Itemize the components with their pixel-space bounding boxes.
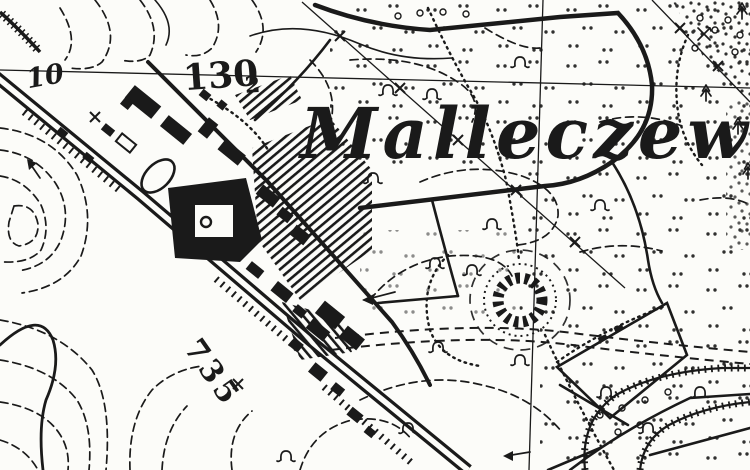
historical-topographic-map[interactable]: Malleczewen 130 2 10 735 <box>0 0 750 470</box>
place-name-label: Malleczewen <box>298 92 750 175</box>
map-canvas: Malleczewen 130 2 10 735 <box>0 0 750 470</box>
spot-height-decimal: 2 <box>244 72 261 99</box>
grid-number-label: 10 <box>24 58 67 95</box>
